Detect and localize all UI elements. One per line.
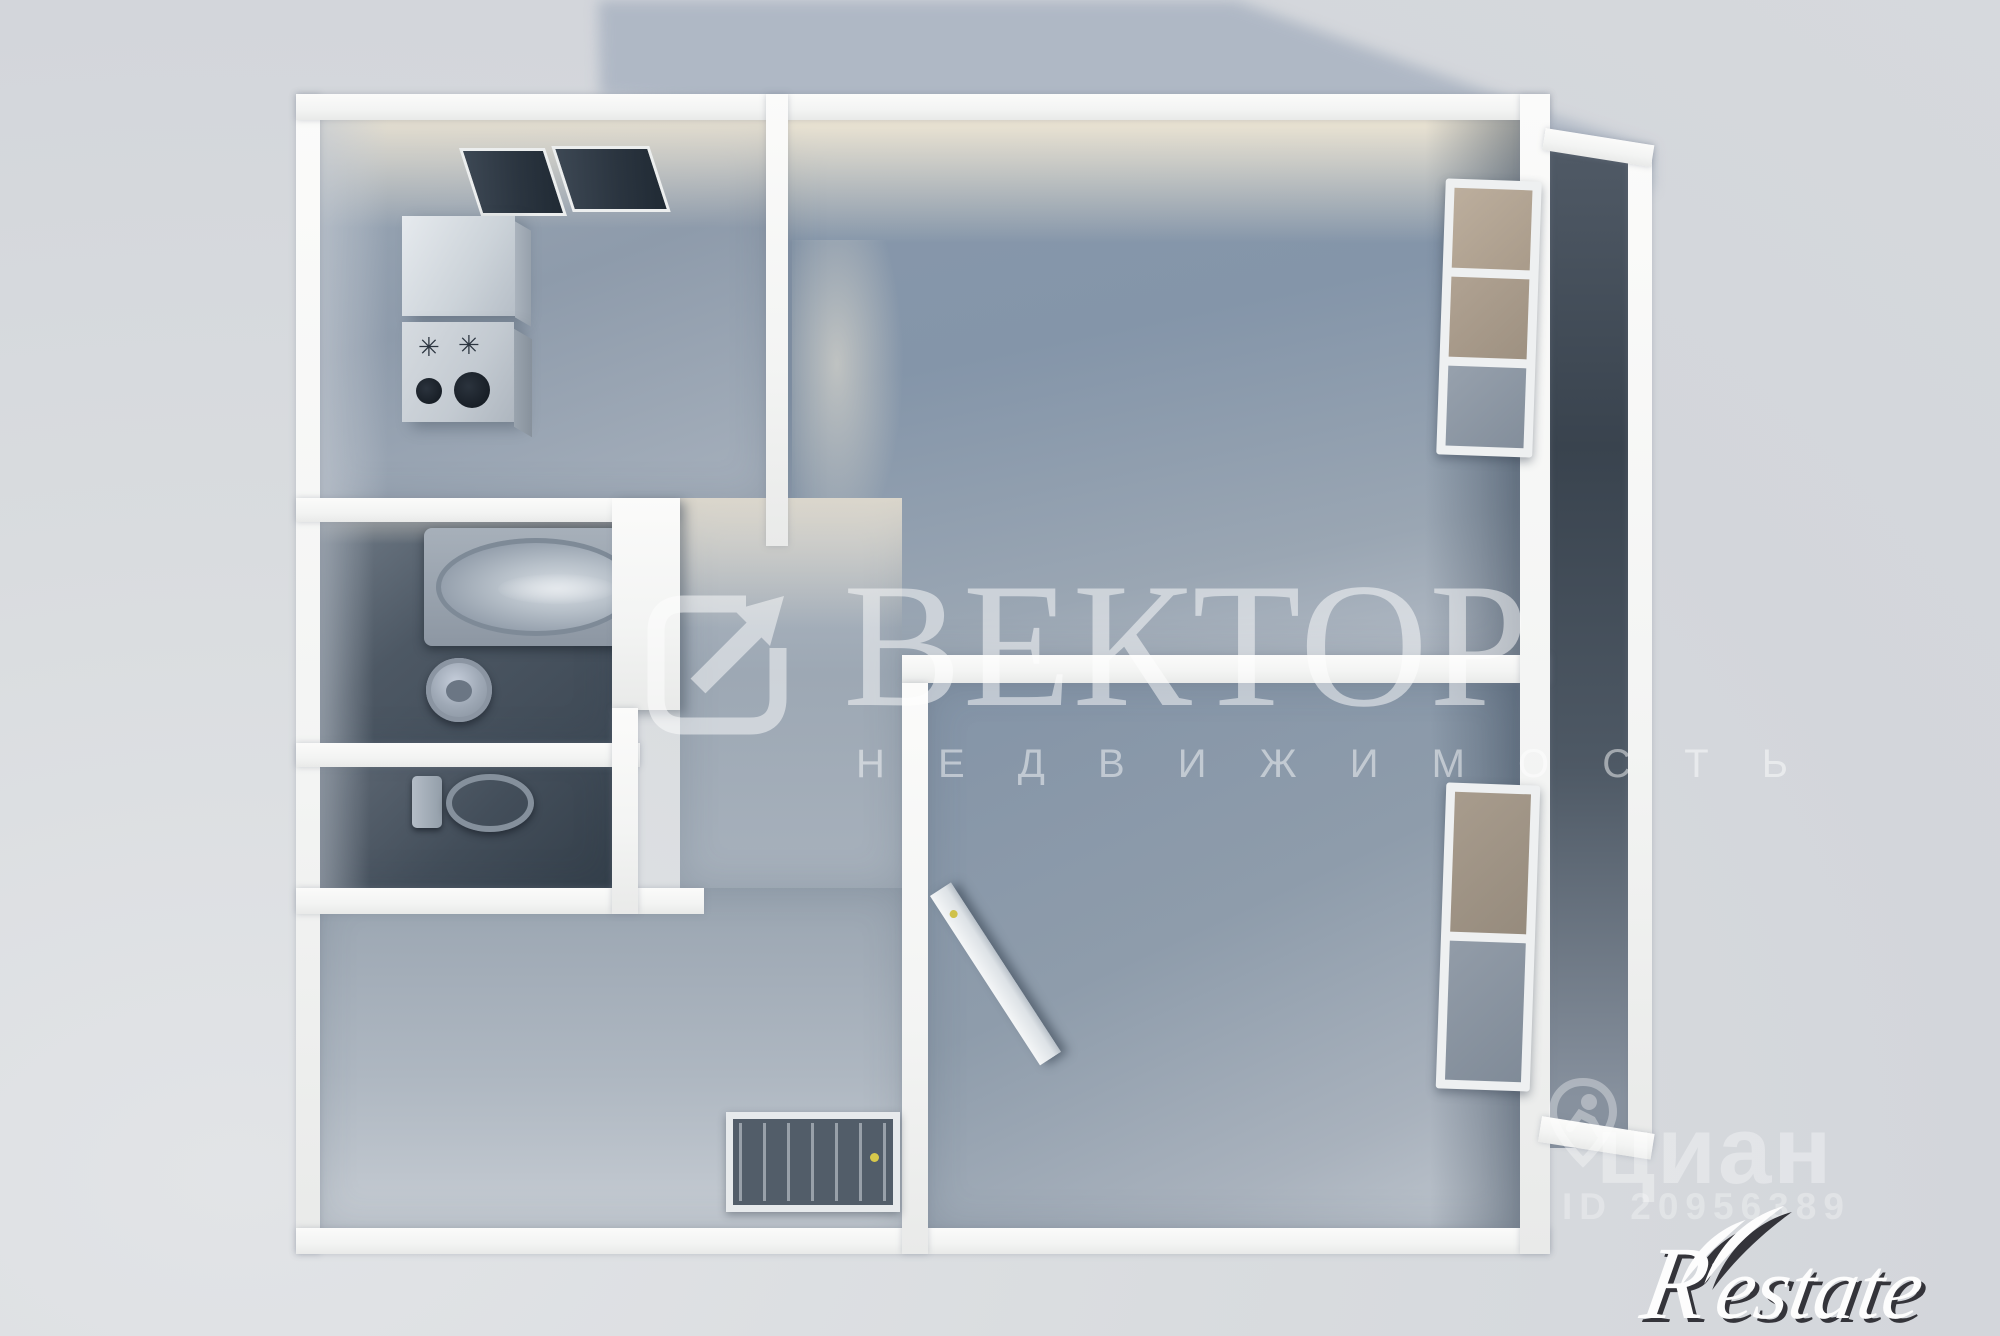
restate-logo: R estate R estate [1628, 1206, 2000, 1336]
window-pane [1452, 188, 1533, 271]
outer-wall-top [296, 94, 1550, 120]
balcony [1550, 146, 1628, 1148]
burner [416, 378, 442, 404]
kitchen-window-pane [551, 146, 670, 212]
outer-wall-left [296, 94, 320, 1254]
toilet-tank [412, 776, 442, 828]
burner-icon: ✳ [418, 334, 440, 360]
entrance-door [726, 1112, 900, 1212]
fridge [402, 216, 515, 316]
window-pane [1445, 940, 1526, 1082]
kitchen-partition-wall [766, 94, 788, 546]
burner-icon: ✳ [458, 332, 480, 358]
wc-side-wall [612, 708, 638, 914]
vektor-logo-icon [646, 582, 802, 754]
main-room-window [1436, 178, 1542, 457]
window-pane [1446, 366, 1527, 449]
vektor-watermark-subtitle: Н Е Д В И Ж И М О С Т Ь [856, 742, 1809, 787]
door-handle [948, 909, 959, 920]
toilet-bowl [446, 774, 534, 832]
door-panel [739, 1123, 887, 1201]
balcony-outer-wall [1628, 146, 1652, 1148]
floorplan-render: ✳ ✳ ВЕКТОР Н Е Д В И [0, 0, 2000, 1336]
window-pane [1450, 792, 1531, 934]
bath-wc-wall [296, 743, 640, 767]
sink [426, 658, 492, 722]
living-room-window [1436, 782, 1541, 1091]
window-pane [1449, 277, 1530, 360]
wc-hall-wall [296, 888, 704, 914]
bathtub-highlight [498, 574, 616, 604]
restate-text: estate [1709, 1241, 1931, 1336]
vektor-watermark-title: ВЕКТОР [843, 556, 1529, 734]
burner [454, 372, 490, 408]
door-handle [870, 1153, 879, 1162]
